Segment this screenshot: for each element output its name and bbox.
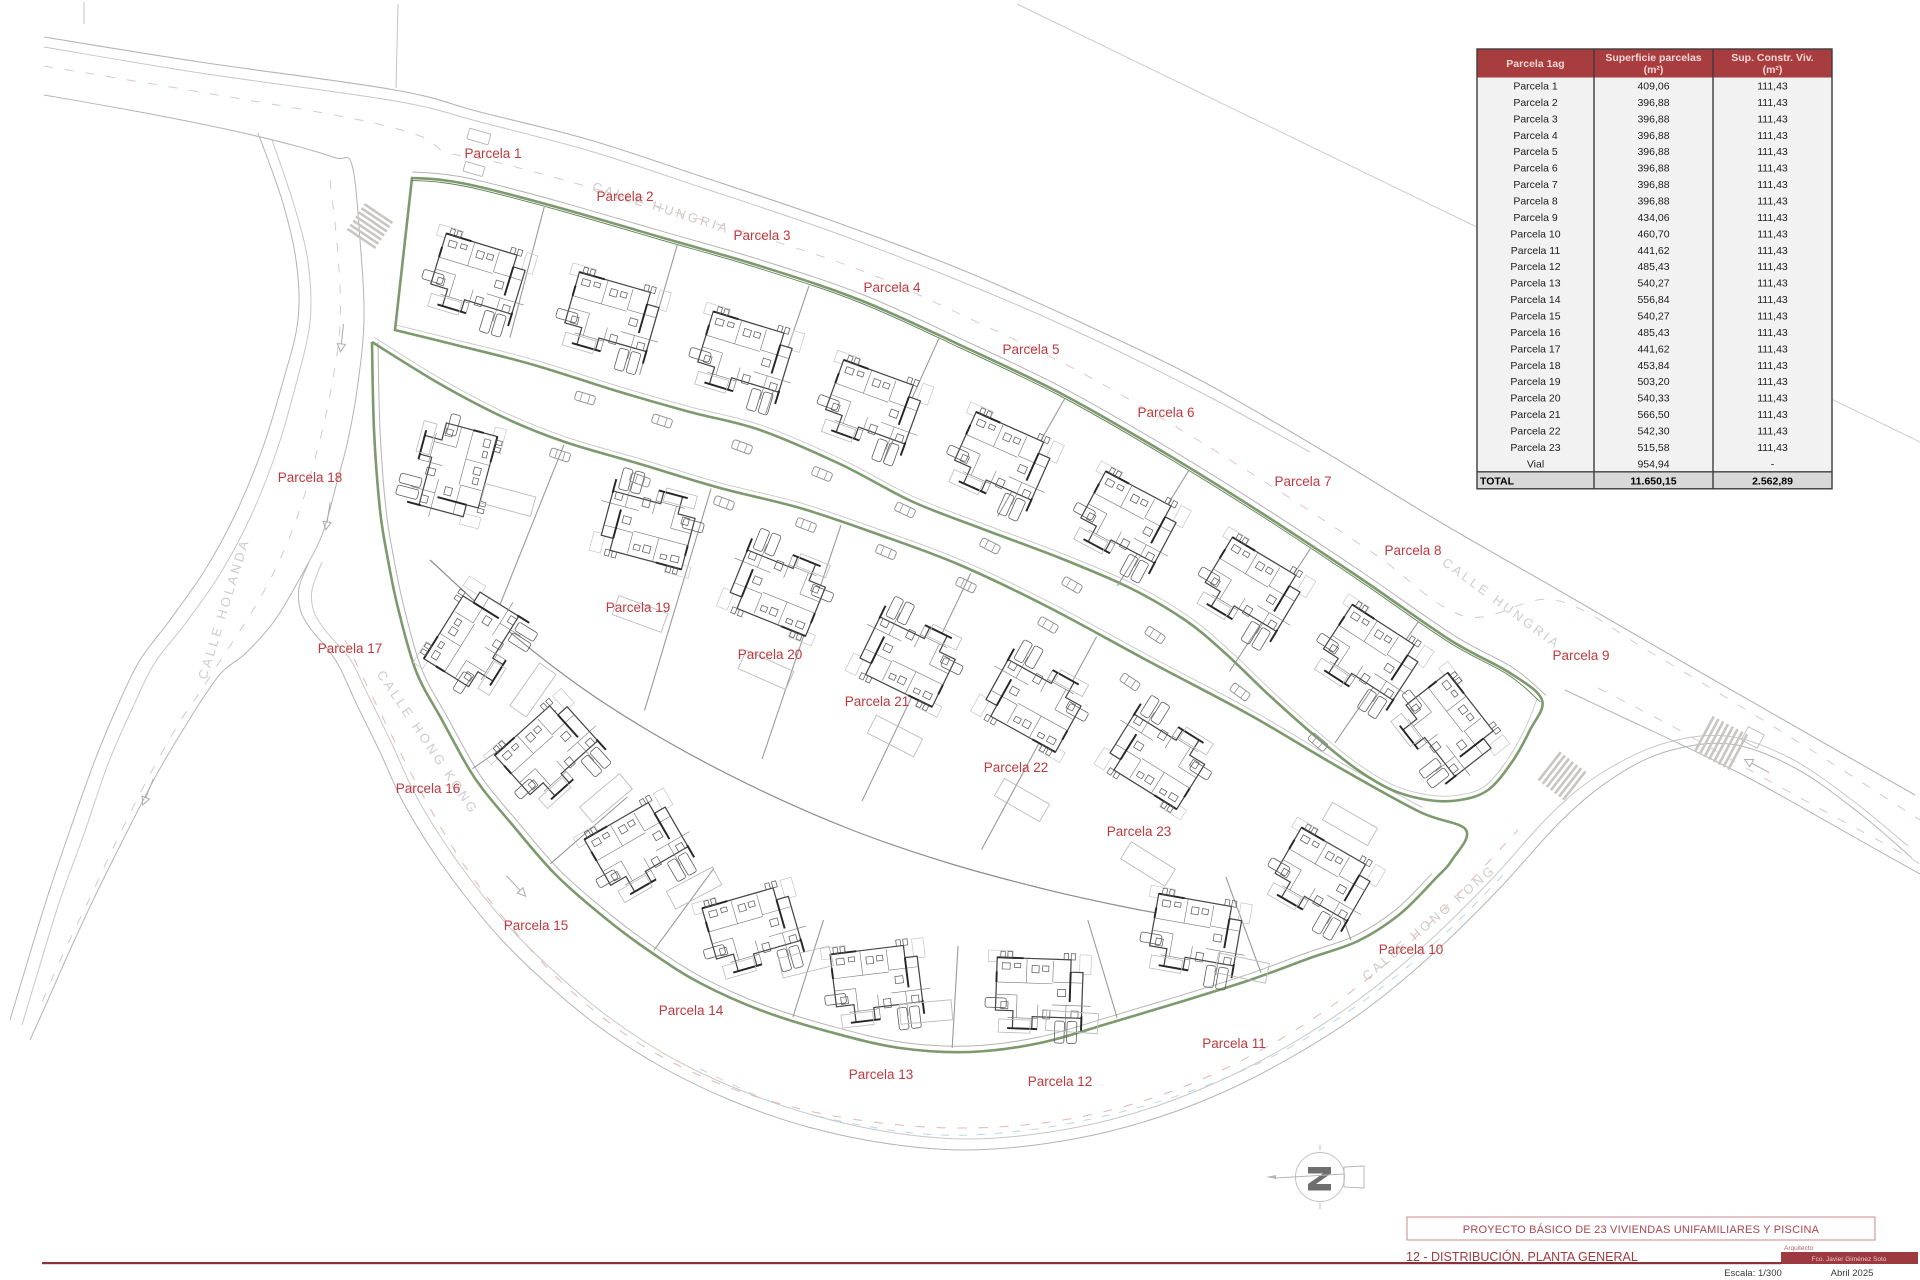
svg-text:Parcela 13: Parcela 13 bbox=[1510, 278, 1560, 290]
svg-text:Parcela 4: Parcela 4 bbox=[863, 280, 921, 295]
svg-text:111,43: 111,43 bbox=[1757, 245, 1788, 257]
svg-text:566,50: 566,50 bbox=[1637, 409, 1669, 421]
svg-text:Parcela 21: Parcela 21 bbox=[845, 694, 910, 709]
svg-text:Parcela 19: Parcela 19 bbox=[1510, 376, 1560, 388]
svg-text:111,43: 111,43 bbox=[1757, 228, 1788, 240]
svg-text:396,88: 396,88 bbox=[1637, 130, 1669, 142]
svg-text:Parcela 13: Parcela 13 bbox=[849, 1067, 914, 1082]
svg-text:396,88: 396,88 bbox=[1637, 196, 1669, 208]
svg-text:Parcela 11: Parcela 11 bbox=[1202, 1036, 1266, 1051]
svg-text:954,94: 954,94 bbox=[1637, 458, 1669, 470]
svg-text:Vial: Vial bbox=[1527, 458, 1544, 470]
svg-text:111,43: 111,43 bbox=[1757, 81, 1788, 93]
svg-text:396,88: 396,88 bbox=[1637, 97, 1669, 109]
svg-text:Parcela 18: Parcela 18 bbox=[278, 470, 343, 485]
svg-text:Parcela 11: Parcela 11 bbox=[1511, 245, 1561, 257]
svg-text:111,43: 111,43 bbox=[1757, 261, 1788, 273]
svg-text:Parcela 8: Parcela 8 bbox=[1513, 196, 1558, 208]
svg-text:Parcela 22: Parcela 22 bbox=[1510, 426, 1560, 438]
svg-text:Sup. Constr. Viv.: Sup. Constr. Viv. bbox=[1731, 52, 1814, 64]
svg-text:Parcela 1ag: Parcela 1ag bbox=[1506, 58, 1564, 70]
svg-text:Parcela 16: Parcela 16 bbox=[1510, 327, 1560, 339]
svg-text:111,43: 111,43 bbox=[1757, 442, 1788, 454]
svg-text:453,84: 453,84 bbox=[1637, 360, 1669, 372]
svg-text:Fco. Javier Giménez Soto: Fco. Javier Giménez Soto bbox=[1812, 1256, 1887, 1263]
svg-text:111,43: 111,43 bbox=[1757, 343, 1788, 355]
svg-text:111,43: 111,43 bbox=[1757, 327, 1788, 339]
svg-text:Parcela 9: Parcela 9 bbox=[1513, 212, 1558, 224]
svg-text:111,43: 111,43 bbox=[1757, 97, 1788, 109]
svg-text:Parcela 3: Parcela 3 bbox=[733, 228, 790, 243]
svg-text:396,88: 396,88 bbox=[1637, 163, 1669, 175]
svg-text:Parcela 19: Parcela 19 bbox=[606, 600, 671, 615]
svg-text:Parcela 4: Parcela 4 bbox=[1513, 130, 1558, 142]
svg-text:2.562,89: 2.562,89 bbox=[1752, 475, 1793, 487]
svg-text:Parcela 22: Parcela 22 bbox=[984, 760, 1049, 775]
svg-text:PROYECTO BÁSICO DE 23 VIVIENDA: PROYECTO BÁSICO DE 23 VIVIENDAS UNIFAMIL… bbox=[1463, 1223, 1820, 1236]
svg-text:111,43: 111,43 bbox=[1757, 294, 1788, 306]
svg-text:Parcela 12: Parcela 12 bbox=[1510, 261, 1560, 273]
svg-text:111,43: 111,43 bbox=[1757, 196, 1788, 208]
svg-text:11.650,15: 11.650,15 bbox=[1630, 475, 1676, 487]
svg-text:Parcela 1: Parcela 1 bbox=[1513, 81, 1558, 93]
svg-text:396,88: 396,88 bbox=[1637, 179, 1669, 191]
svg-text:441,62: 441,62 bbox=[1637, 343, 1669, 355]
svg-text:Parcela 20: Parcela 20 bbox=[1510, 393, 1560, 405]
svg-text:111,43: 111,43 bbox=[1757, 393, 1788, 405]
svg-text:Parcela 7: Parcela 7 bbox=[1274, 474, 1331, 489]
svg-text:Parcela 12: Parcela 12 bbox=[1028, 1074, 1093, 1089]
svg-text:111,43: 111,43 bbox=[1757, 311, 1788, 323]
svg-text:409,06: 409,06 bbox=[1637, 81, 1669, 93]
svg-text:Parcela 5: Parcela 5 bbox=[1002, 342, 1059, 357]
svg-text:556,84: 556,84 bbox=[1637, 294, 1669, 306]
svg-text:Superficie parcelas: Superficie parcelas bbox=[1605, 52, 1701, 64]
svg-text:111,43: 111,43 bbox=[1757, 212, 1788, 224]
svg-text:Parcela 15: Parcela 15 bbox=[1510, 311, 1560, 323]
svg-text:540,33: 540,33 bbox=[1637, 393, 1669, 405]
svg-text:Parcela 20: Parcela 20 bbox=[738, 647, 803, 662]
svg-text:Parcela 2: Parcela 2 bbox=[1513, 97, 1558, 109]
svg-text:Parcela 16: Parcela 16 bbox=[396, 781, 461, 796]
svg-text:12 - DISTRIBUCIÓN. PLANTA GENE: 12 - DISTRIBUCIÓN. PLANTA GENERAL bbox=[1406, 1249, 1638, 1264]
svg-text:Parcela 6: Parcela 6 bbox=[1137, 405, 1194, 420]
svg-text:Parcela 23: Parcela 23 bbox=[1107, 824, 1172, 839]
svg-text:Parcela 14: Parcela 14 bbox=[659, 1003, 724, 1018]
svg-text:Parcela 10: Parcela 10 bbox=[1510, 228, 1560, 240]
svg-text:111,43: 111,43 bbox=[1757, 179, 1788, 191]
svg-text:111,43: 111,43 bbox=[1757, 130, 1788, 142]
svg-text:111,43: 111,43 bbox=[1757, 146, 1788, 158]
svg-text:485,43: 485,43 bbox=[1637, 261, 1669, 273]
svg-text:(m²): (m²) bbox=[1644, 64, 1664, 76]
svg-text:(m²): (m²) bbox=[1763, 64, 1783, 76]
svg-text:Parcela 18: Parcela 18 bbox=[1510, 360, 1560, 372]
svg-text:Parcela 3: Parcela 3 bbox=[1513, 113, 1558, 125]
svg-text:Parcela 1: Parcela 1 bbox=[464, 146, 521, 161]
svg-text:111,43: 111,43 bbox=[1757, 163, 1788, 175]
svg-text:Parcela 2: Parcela 2 bbox=[596, 189, 653, 204]
svg-text:Parcela 8: Parcela 8 bbox=[1384, 543, 1441, 558]
svg-text:111,43: 111,43 bbox=[1757, 376, 1788, 388]
svg-text:396,88: 396,88 bbox=[1637, 113, 1669, 125]
svg-text:540,27: 540,27 bbox=[1637, 278, 1669, 290]
svg-text:Parcela 15: Parcela 15 bbox=[504, 918, 569, 933]
svg-text:Abril 2025: Abril 2025 bbox=[1831, 1268, 1874, 1279]
svg-text:Arquitecto: Arquitecto bbox=[1784, 1245, 1814, 1252]
svg-text:111,43: 111,43 bbox=[1757, 278, 1788, 290]
svg-text:503,20: 503,20 bbox=[1637, 376, 1669, 388]
svg-text:Parcela 9: Parcela 9 bbox=[1552, 648, 1609, 663]
svg-text:TOTAL: TOTAL bbox=[1480, 475, 1515, 487]
svg-text:111,43: 111,43 bbox=[1757, 113, 1788, 125]
svg-text:Parcela 17: Parcela 17 bbox=[1510, 343, 1560, 355]
svg-text:485,43: 485,43 bbox=[1637, 327, 1669, 339]
svg-text:434,06: 434,06 bbox=[1637, 212, 1669, 224]
svg-text:542,30: 542,30 bbox=[1637, 426, 1669, 438]
svg-text:Parcela 10: Parcela 10 bbox=[1379, 942, 1444, 957]
svg-text:Escala: 1/300: Escala: 1/300 bbox=[1724, 1268, 1782, 1279]
svg-text:Parcela 23: Parcela 23 bbox=[1510, 442, 1560, 454]
svg-text:460,70: 460,70 bbox=[1637, 228, 1669, 240]
svg-text:515,58: 515,58 bbox=[1637, 442, 1669, 454]
svg-text:Parcela 21: Parcela 21 bbox=[1510, 409, 1560, 421]
svg-text:Parcela 6: Parcela 6 bbox=[1513, 163, 1558, 175]
svg-text:Parcela 5: Parcela 5 bbox=[1513, 146, 1558, 158]
svg-text:111,43: 111,43 bbox=[1757, 360, 1788, 372]
svg-text:-: - bbox=[1771, 458, 1775, 470]
svg-text:540,27: 540,27 bbox=[1637, 311, 1669, 323]
svg-text:396,88: 396,88 bbox=[1637, 146, 1669, 158]
svg-text:111,43: 111,43 bbox=[1757, 426, 1788, 438]
svg-text:441,62: 441,62 bbox=[1637, 245, 1669, 257]
svg-text:Parcela 7: Parcela 7 bbox=[1513, 179, 1558, 191]
svg-text:Parcela 14: Parcela 14 bbox=[1510, 294, 1560, 306]
svg-text:111,43: 111,43 bbox=[1757, 409, 1788, 421]
svg-text:Parcela 17: Parcela 17 bbox=[318, 641, 383, 656]
